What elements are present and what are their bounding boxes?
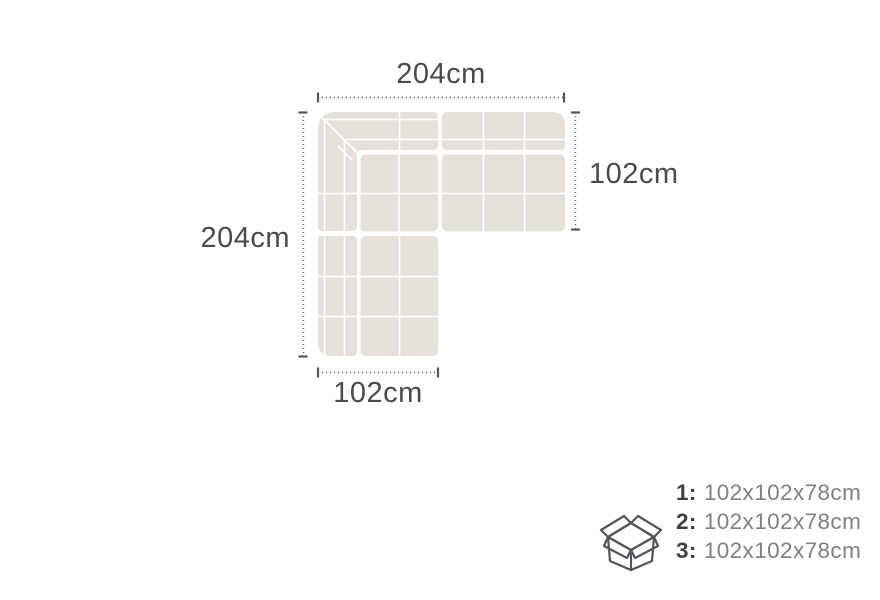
dimension-line-bottom: [318, 368, 438, 378]
package-number: 2:: [676, 509, 697, 534]
package-number: 1:: [676, 480, 697, 505]
package-number: 3:: [676, 538, 697, 563]
package-size-list: 1:102x102x78cm 2:102x102x78cm 3:102x102x…: [676, 478, 861, 565]
dimension-label-left: 204cm: [150, 222, 290, 255]
dimension-line-left: [299, 112, 308, 357]
dimension-line-right: [571, 112, 580, 230]
dimension-label-top: 204cm: [341, 58, 541, 91]
dimension-label-right: 102cm: [589, 158, 679, 191]
package-size: 102x102x78cm: [704, 480, 861, 505]
right-unit-back: [442, 112, 565, 150]
dimension-line-top: [318, 93, 564, 103]
sofa-plan: [318, 112, 565, 356]
package-size: 102x102x78cm: [704, 509, 861, 534]
dimension-label-bottom: 102cm: [278, 377, 478, 410]
package-item: 2:102x102x78cm: [676, 507, 861, 536]
open-box-icon: [601, 516, 661, 570]
sofa-dimension-diagram: 204cm 204cm 102cm 102cm 1:102x102x78cm 2…: [0, 0, 880, 600]
package-item: 1:102x102x78cm: [676, 478, 861, 507]
package-item: 3:102x102x78cm: [676, 536, 861, 565]
package-size: 102x102x78cm: [704, 538, 861, 563]
